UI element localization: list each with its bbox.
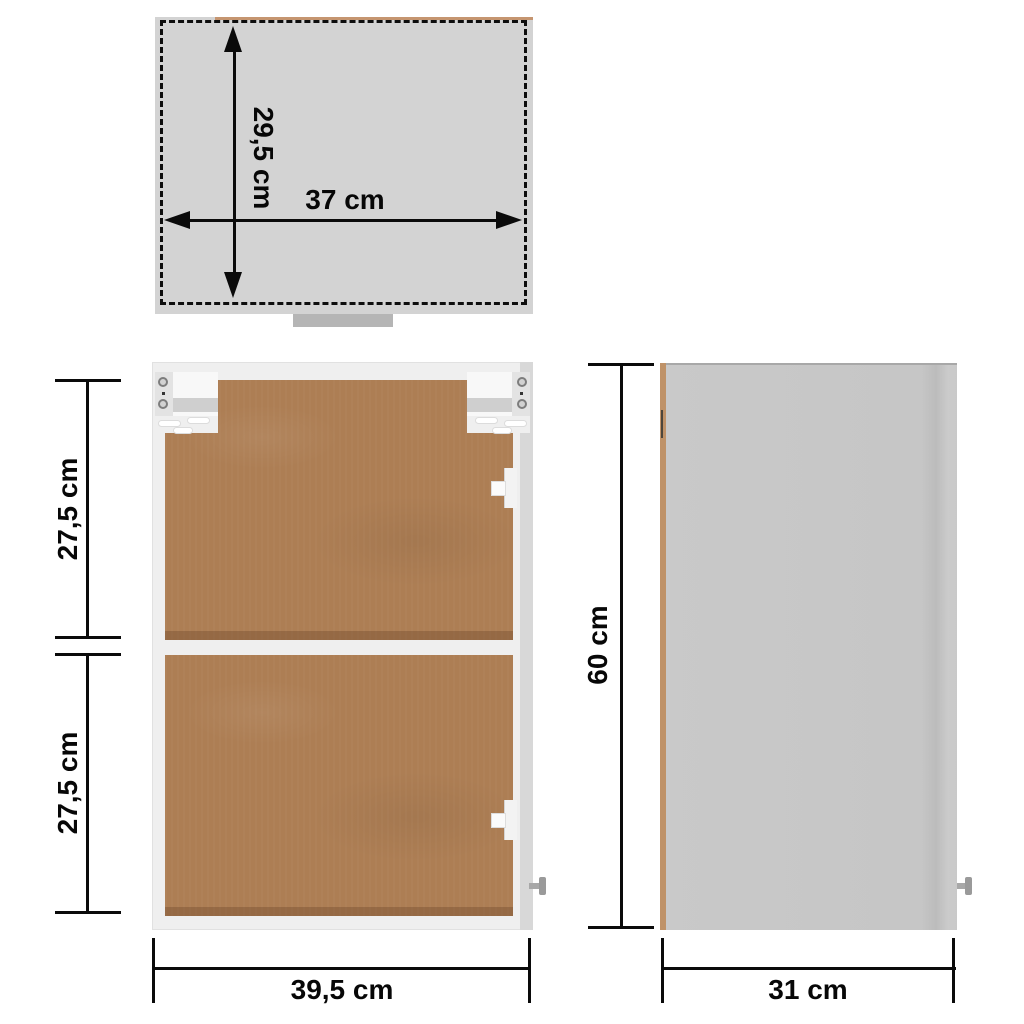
- lower-height-dimension-line: [86, 654, 89, 913]
- top-width-dimension-line: [188, 219, 498, 222]
- side-depth-label: 31 cm: [768, 976, 847, 1004]
- dimension-tick: [55, 911, 121, 914]
- dimension-tick: [952, 938, 955, 1003]
- slot-icon: [504, 420, 527, 427]
- side-view-wood-edge: [660, 363, 666, 930]
- slot-icon: [173, 427, 193, 434]
- dimension-tick: [528, 938, 531, 1003]
- slot-icon: [492, 427, 512, 434]
- arrowhead-left-icon: [164, 211, 190, 229]
- wall-bracket-right: [467, 372, 530, 433]
- door-knob-icon: [539, 877, 546, 895]
- top-view-mount-tab: [293, 314, 393, 327]
- bracket-slot-band: [467, 416, 530, 433]
- front-upper-height-label: 27,5 cm: [54, 458, 82, 561]
- hinge-tab-upper: [491, 481, 506, 496]
- screw-icon: [158, 399, 168, 409]
- bracket-rail: [173, 398, 218, 412]
- screw-icon: [158, 377, 168, 387]
- screw-icon: [517, 377, 527, 387]
- side-depth-dimension-line: [662, 967, 956, 970]
- dimension-tick: [55, 636, 121, 639]
- slot-icon: [187, 417, 210, 424]
- dimension-tick: [152, 938, 155, 1003]
- bracket-rail: [467, 398, 512, 412]
- wall-bracket-left: [155, 372, 218, 433]
- dimension-tick: [588, 926, 654, 929]
- hinge-tab-lower: [491, 813, 506, 828]
- cabinet-dimension-diagram: 29,5 cm 37 cm: [0, 0, 1024, 1024]
- front-view-right-side-panel: [520, 362, 533, 930]
- lower-panel-shadow: [165, 907, 513, 916]
- slot-icon: [158, 420, 181, 427]
- top-depth-label: 29,5 cm: [249, 107, 277, 210]
- side-height-label: 60 cm: [584, 605, 612, 684]
- upper-panel-shadow: [165, 631, 513, 640]
- front-width-dimension-line: [152, 967, 531, 970]
- side-height-dimension-line: [620, 365, 623, 928]
- front-width-label: 39,5 cm: [291, 976, 394, 1004]
- top-depth-dimension-line: [233, 50, 236, 274]
- screw-hole-icon: [162, 392, 165, 395]
- slot-icon: [475, 417, 498, 424]
- dimension-tick: [55, 653, 121, 656]
- bracket-slot-band: [155, 416, 218, 433]
- top-view-dashed-outline: [160, 20, 527, 305]
- arrowhead-down-icon: [224, 272, 242, 298]
- upper-height-dimension-line: [86, 380, 89, 638]
- front-lower-height-label: 27,5 cm: [54, 732, 82, 835]
- arrowhead-right-icon: [496, 211, 522, 229]
- dimension-tick: [55, 379, 121, 382]
- top-width-label: 37 cm: [305, 186, 384, 214]
- side-view-seam: [661, 410, 663, 438]
- arrowhead-up-icon: [224, 26, 242, 52]
- screw-icon: [517, 399, 527, 409]
- front-view-lower-back-panel: [165, 655, 513, 916]
- dimension-tick: [588, 363, 654, 366]
- side-view-panel: [660, 363, 957, 930]
- screw-hole-icon: [520, 392, 523, 395]
- side-knob-icon: [965, 877, 972, 895]
- dimension-tick: [661, 938, 664, 1003]
